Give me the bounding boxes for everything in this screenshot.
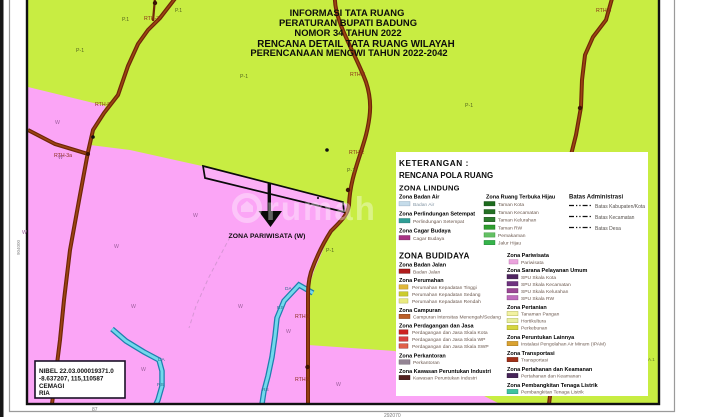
svg-text:SPU Skala Kecamatan: SPU Skala Kecamatan bbox=[521, 282, 571, 288]
svg-text:W: W bbox=[193, 213, 198, 219]
svg-text:RENCANA POLA RUANG: RENCANA POLA RUANG bbox=[399, 171, 493, 180]
svg-text:Perdagangan dan Jasa Skala Kot: Perdagangan dan Jasa Skala Kota bbox=[412, 330, 488, 336]
svg-text:rumah: rumah bbox=[266, 190, 377, 227]
svg-text:-8.637207, 115,110587: -8.637207, 115,110587 bbox=[39, 376, 104, 383]
svg-text:RTH-8: RTH-8 bbox=[295, 377, 310, 383]
svg-text:SPU Skala Kota: SPU Skala Kota bbox=[521, 275, 556, 281]
svg-text:RTH-3a: RTH-3a bbox=[54, 153, 72, 159]
svg-text:Taman RW: Taman RW bbox=[498, 225, 522, 231]
svg-text:Zona Kawasan Peruntukan Indust: Zona Kawasan Peruntukan Industri bbox=[399, 369, 491, 375]
svg-text:P-1: P-1 bbox=[76, 48, 84, 54]
svg-text:W: W bbox=[131, 304, 136, 310]
svg-text:NIBEL 22.03.000019371.0: NIBEL 22.03.000019371.0 bbox=[39, 368, 114, 375]
svg-text:Pariwisata: Pariwisata bbox=[521, 260, 544, 266]
svg-text:RIA: RIA bbox=[39, 390, 50, 397]
svg-text:RS: RS bbox=[277, 305, 284, 311]
svg-text:Zona Peruntukan Lainnya: Zona Peruntukan Lainnya bbox=[507, 335, 575, 341]
svg-text:W: W bbox=[141, 367, 146, 373]
svg-text:Zona Perdagangan dan Jasa: Zona Perdagangan dan Jasa bbox=[399, 324, 475, 330]
svg-text:Zona Pertahanan dan Keamanan: Zona Pertahanan dan Keamanan bbox=[507, 367, 593, 373]
svg-text:RTH-2: RTH-2 bbox=[349, 150, 364, 156]
svg-text:Kawasan Peruntukan Industri: Kawasan Peruntukan Industri bbox=[413, 376, 477, 382]
svg-text:Taman Kota: Taman Kota bbox=[498, 202, 524, 208]
svg-text:Zona Perumahan: Zona Perumahan bbox=[399, 278, 444, 284]
svg-text:904000: 904000 bbox=[16, 239, 21, 255]
svg-text:Perdagangan dan Jasa Skala SWP: Perdagangan dan Jasa Skala SWP bbox=[412, 344, 489, 350]
svg-text:DA: DA bbox=[285, 286, 292, 292]
svg-text:P-1: P-1 bbox=[326, 248, 334, 254]
svg-text:P-1: P-1 bbox=[347, 168, 355, 174]
svg-text:Hortikultura: Hortikultura bbox=[521, 319, 546, 325]
svg-text:Pembangkitan Tenaga Listrik: Pembangkitan Tenaga Listrik bbox=[521, 390, 584, 396]
svg-text:RTH-8: RTH-8 bbox=[295, 314, 310, 320]
svg-text:Zona Pertanian: Zona Pertanian bbox=[507, 305, 547, 311]
svg-text:Taman Kelurahan: Taman Kelurahan bbox=[498, 218, 537, 224]
svg-text:Batas Administrasi: Batas Administrasi bbox=[569, 195, 623, 201]
svg-text:W: W bbox=[22, 230, 27, 236]
svg-text:Zona Pariwisata: Zona Pariwisata bbox=[507, 253, 550, 259]
svg-text:Badan Jalan: Badan Jalan bbox=[413, 269, 440, 275]
svg-text:ZONA BUDIDAYA: ZONA BUDIDAYA bbox=[399, 252, 470, 261]
svg-text:Jalur Hijau: Jalur Hijau bbox=[498, 241, 521, 247]
svg-text:Perkantoran: Perkantoran bbox=[413, 360, 440, 366]
svg-text:Zona Ruang Terbuka Hijau: Zona Ruang Terbuka Hijau bbox=[486, 195, 555, 201]
svg-text:Zona Cagar Budaya: Zona Cagar Budaya bbox=[399, 229, 452, 235]
svg-text:Zona Pembangkitan Tenaga Listr: Zona Pembangkitan Tenaga Listrik bbox=[507, 383, 599, 389]
svg-text:W: W bbox=[58, 155, 63, 161]
svg-text:P.1: P.1 bbox=[122, 17, 129, 23]
svg-text:Perlindungan Setempat: Perlindungan Setempat bbox=[413, 219, 465, 225]
svg-text:A.1: A.1 bbox=[648, 357, 655, 362]
svg-text:Pemakaman: Pemakaman bbox=[498, 233, 526, 239]
svg-text:ZONA LINDUNG: ZONA LINDUNG bbox=[399, 184, 460, 193]
svg-text:W: W bbox=[336, 382, 341, 388]
svg-text:Perdagangan dan Jasa Skala WP: Perdagangan dan Jasa Skala WP bbox=[412, 337, 485, 343]
svg-text:KETERANGAN :: KETERANGAN : bbox=[399, 159, 469, 168]
svg-text:PERENCANAAN MENGWI TAHUN 2022-: PERENCANAAN MENGWI TAHUN 2022-2042 bbox=[250, 47, 447, 58]
svg-text:Zona Transportasi: Zona Transportasi bbox=[507, 351, 555, 357]
svg-text:Perumahan Kepadatan Sedang: Perumahan Kepadatan Sedang bbox=[412, 292, 481, 298]
svg-text:Transportasi: Transportasi bbox=[521, 358, 548, 364]
svg-text:Zona Perlindungan Setempat: Zona Perlindungan Setempat bbox=[399, 212, 475, 218]
svg-text:RTH-2: RTH-2 bbox=[350, 72, 365, 78]
svg-text:Campuran Intensitas Menengah/S: Campuran Intensitas Menengah/Sedang bbox=[413, 315, 501, 321]
svg-text:Zona Badan Air: Zona Badan Air bbox=[399, 195, 440, 201]
svg-text:SPU Skala Kelurahan: SPU Skala Kelurahan bbox=[521, 289, 569, 295]
svg-text:Instalasi Pengolahan Air Minum: Instalasi Pengolahan Air Minum (IPAM) bbox=[521, 342, 606, 348]
svg-text:Perumahan Kepadatan Tinggi: Perumahan Kepadatan Tinggi bbox=[412, 285, 477, 291]
svg-text:W: W bbox=[286, 329, 291, 335]
svg-text:W: W bbox=[55, 120, 60, 126]
svg-text:87: 87 bbox=[92, 407, 98, 413]
svg-text:Batas Kecamatan: Batas Kecamatan bbox=[595, 215, 635, 221]
svg-text:Perumahan Kepadatan Rendah: Perumahan Kepadatan Rendah bbox=[412, 299, 481, 305]
svg-text:CEMAGI: CEMAGI bbox=[39, 383, 64, 390]
svg-text:Tanaman Pangan: Tanaman Pangan bbox=[521, 312, 560, 318]
svg-text:P-1: P-1 bbox=[465, 103, 473, 109]
svg-text:RTH-8: RTH-8 bbox=[95, 102, 110, 108]
svg-text:292070: 292070 bbox=[384, 413, 401, 419]
svg-text:Zona Badan Jalan: Zona Badan Jalan bbox=[399, 263, 447, 269]
svg-text:Badan Air: Badan Air bbox=[413, 202, 435, 208]
svg-text:Perkebunan: Perkebunan bbox=[521, 326, 548, 332]
svg-text:DA: DA bbox=[158, 357, 165, 363]
svg-text:Zona Perkantoran: Zona Perkantoran bbox=[399, 354, 446, 360]
svg-text:RTH-8: RTH-8 bbox=[596, 8, 611, 14]
svg-text:Taman Kecamatan: Taman Kecamatan bbox=[498, 210, 539, 216]
svg-text:Zona Campuran: Zona Campuran bbox=[399, 308, 442, 314]
svg-text:ZONA PARIWISATA (W): ZONA PARIWISATA (W) bbox=[229, 233, 306, 240]
svg-text:NOMOR 34 TAHUN 2022: NOMOR 34 TAHUN 2022 bbox=[294, 27, 401, 38]
svg-text:W: W bbox=[114, 244, 119, 250]
svg-text:RS: RS bbox=[157, 382, 164, 388]
svg-text:SPU Skala RW: SPU Skala RW bbox=[521, 296, 554, 302]
svg-text:Batas Desa: Batas Desa bbox=[595, 226, 621, 232]
svg-text:P-1: P-1 bbox=[240, 74, 248, 80]
svg-text:Pertahanan dan Keamanan: Pertahanan dan Keamanan bbox=[521, 374, 581, 380]
svg-text:W: W bbox=[238, 304, 243, 310]
svg-text:RS: RS bbox=[262, 387, 269, 393]
svg-text:RTH-3: RTH-3 bbox=[144, 16, 159, 22]
svg-text:P.1: P.1 bbox=[175, 8, 182, 14]
svg-text:Zona Sarana Pelayanan Umum: Zona Sarana Pelayanan Umum bbox=[507, 268, 587, 274]
svg-text:Batas Kabupaten/Kota: Batas Kabupaten/Kota bbox=[595, 204, 645, 210]
svg-text:Cagar Budaya: Cagar Budaya bbox=[413, 236, 445, 242]
